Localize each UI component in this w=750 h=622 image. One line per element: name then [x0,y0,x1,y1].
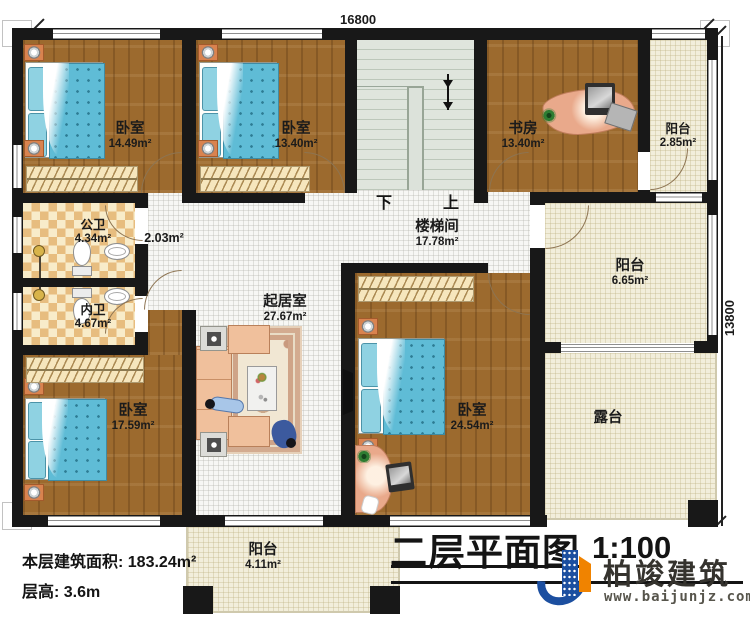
room-name: 卧室 [119,403,148,420]
room-label-bedroom-bottom-right: 卧室 24.54m² [451,403,494,434]
room-label-terrace: 露台 [594,410,623,427]
wall [694,341,713,353]
room-name: 书房 [509,121,538,138]
logo-building-icon [562,550,578,596]
room-area: 4.67m² [75,318,111,332]
room-label-study: 书房 13.40m² [502,121,545,152]
room-name: 公卫 [80,218,105,233]
wall [638,28,650,152]
wardrobe [200,166,310,192]
window [13,217,22,253]
room-label-inner-bath: 内卫 4.67m² [75,303,111,332]
person-head [205,399,215,409]
room-label-bedroom-bottom-left: 卧室 17.59m² [112,403,155,434]
room-name: 露台 [594,410,623,427]
right-dimension-line [721,36,723,526]
nightstand [198,44,218,61]
room-name: 阳台 [665,122,690,137]
room-area: 6.65m² [612,275,648,289]
column [370,586,400,614]
wardrobe [26,166,138,192]
floor-plan-canvas: 16800 13800 [0,0,750,622]
room-label-balcony-top-right: 阳台 2.85m² [660,122,696,151]
right-dimension-label: 13800 [722,300,737,336]
room-label-balcony-bottom: 阳台 4.11m² [245,542,281,573]
window [53,29,160,39]
room-name: 卧室 [282,121,311,138]
wall [182,310,196,515]
nightstand [358,318,378,335]
window [708,60,717,180]
window [222,29,322,39]
monitor-screen [389,466,411,486]
hall-area-label: 2.03m² [144,231,184,246]
room-name: 卧室 [458,403,487,420]
stair-railing [407,86,424,190]
nightstand [24,44,44,61]
window [656,193,702,202]
window [652,29,705,39]
wall [474,28,487,203]
column [688,500,718,527]
room-name: 起居室 [263,294,307,311]
room-area: 17.78m² [416,236,459,250]
column [183,586,213,614]
balcony-sliding-door [225,516,323,526]
double-bed [358,338,444,434]
window [708,215,717,335]
stair-up-label: 上 [443,189,459,213]
room-area: 2.03m² [144,231,184,246]
window [48,516,160,526]
sheet-fold [377,339,405,433]
wall [182,28,196,193]
room-area: 27.67m² [264,311,307,325]
stair-landing-line [357,86,407,87]
tv [343,369,353,415]
wall [12,278,148,287]
toilet-tank [72,288,92,298]
room-label-stairwell: 楼梯间 17.78m² [415,219,459,250]
floor-height-note: 层高: 3.6m [22,578,100,602]
wall [12,28,23,526]
logo-building-accent-icon [579,556,591,592]
room-area: 4.34m² [75,233,111,247]
room-area: 13.40m² [275,138,318,152]
nightstand [24,484,44,501]
person-head [286,438,296,448]
window [13,293,22,330]
room-name: 阳台 [616,258,645,275]
room-area: 4.11m² [245,559,281,573]
wall [135,244,148,296]
room-terrace [545,353,717,520]
table-lamp [207,438,221,452]
room-name: 卧室 [116,121,145,138]
room-area: 2.85m² [660,137,696,151]
wall [341,263,488,273]
plant [357,450,371,463]
wall [12,345,148,355]
shower-knob [33,289,45,301]
stair-arrow-head [443,102,453,115]
sofa-seat [228,416,270,447]
room-balcony-bottom [186,527,400,613]
room-name: 内卫 [80,303,105,318]
room-area: 17.59m² [112,420,155,434]
shower-knob [33,245,45,257]
wall [12,193,140,203]
sofa-seat [228,325,270,354]
floor-area-note: 本层建筑面积: 183.24m² [22,548,196,572]
brand-logo [536,548,600,608]
coffee-table [247,366,277,411]
stair-arrow-head [443,80,453,93]
window [13,145,22,188]
room-name: 阳台 [249,542,278,559]
room-area: 24.54m² [451,420,494,434]
wall [474,192,488,203]
room-bedroom-bottom-left-entry [148,310,182,355]
stair-down-label: 下 [376,189,392,213]
sofa-long [196,346,232,440]
table-lamp [207,332,221,346]
wall [530,193,545,205]
room-area: 14.49m² [109,138,152,152]
wall [182,193,305,203]
room-label-bedroom-top-left: 卧室 14.49m² [109,121,152,152]
nightstand [24,140,44,157]
room-area: 13.40m² [502,138,545,152]
room-label-living: 起居室 27.67m² [263,294,307,325]
brand-website: www.baijunjz.com [604,589,750,605]
shower-rail [39,253,41,293]
double-bed [25,398,105,480]
toilet-tank [72,266,92,276]
wall [537,342,561,353]
brand-name: 柏竣建筑 [603,551,731,593]
nightstand [198,140,218,157]
window [561,344,694,352]
room-name: 楼梯间 [415,219,459,236]
monitor-screen [588,87,612,108]
side-table [200,326,227,351]
wall [345,28,357,193]
room-label-balcony-right: 阳台 6.65m² [612,258,648,289]
wardrobe [358,276,474,302]
top-dimension-label: 16800 [340,12,376,27]
wall [530,248,545,515]
side-table [200,432,227,457]
room-label-public-bath: 公卫 4.34m² [75,218,111,247]
computer-monitor [385,461,415,492]
wardrobe [26,357,144,383]
room-label-bedroom-top-middle: 卧室 13.40m² [275,121,318,152]
